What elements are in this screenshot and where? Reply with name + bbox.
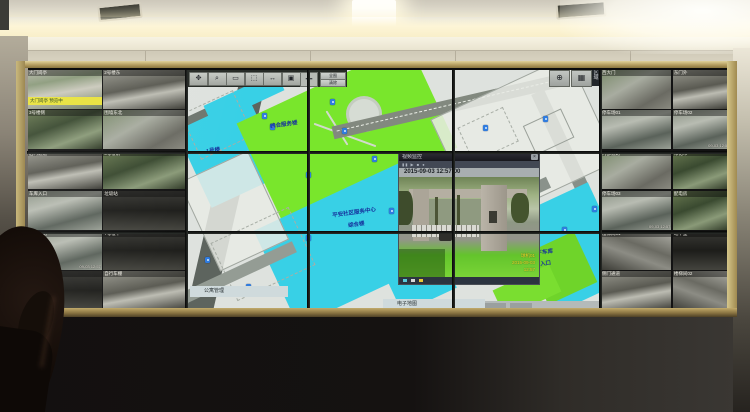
right-camera-tile-11[interactable]: 侧门通道	[601, 271, 671, 310]
right-camera-tile-5[interactable]: 内部道路	[601, 151, 671, 190]
toolbar-button-layers-icon[interactable]: ⬚	[245, 72, 264, 86]
map-camera-icon[interactable]	[342, 128, 347, 134]
monitor-bezel-vertical	[452, 70, 455, 310]
camera-label: 停车场03	[601, 191, 671, 197]
wall-frame-right	[727, 61, 737, 313]
map-camera-icon[interactable]	[205, 257, 210, 263]
osd-date: 2015-09-03	[512, 261, 535, 266]
camera-timestamp: 09-03 12:57	[79, 264, 100, 269]
toolbar-button-zoom-in-icon[interactable]: ⌕	[208, 72, 227, 86]
camera-label: 围墙东北	[103, 110, 186, 116]
right-camera-tile-12[interactable]: 楼梯间02	[673, 271, 731, 310]
wall-frame-top	[16, 61, 736, 68]
popup-playback-controls[interactable]: ▮▮ ▶ ■ ●	[399, 161, 539, 168]
left-camera-tile-2[interactable]: 2号楼东	[103, 70, 186, 109]
camera-label: 大门岗亭	[28, 70, 102, 76]
popup-timestamp: 2015-09-03 12:57:00	[399, 168, 539, 177]
close-icon[interactable]: ×	[531, 154, 538, 160]
right-camera-tile-2[interactable]: 东门外	[673, 70, 731, 109]
photo-corner-shadow	[0, 0, 9, 30]
right-camera-tile-8[interactable]: 配电房	[673, 191, 731, 230]
right-camera-tile-4[interactable]: 停车场0209-03 12:57	[673, 110, 731, 149]
camera-label: 垃圾站	[103, 191, 186, 197]
right-camera-tile-6[interactable]: 绿化带	[673, 151, 731, 190]
map-tab[interactable]: 公寓管理	[190, 286, 288, 297]
map-camera-icon[interactable]	[483, 125, 488, 131]
camera-label: 配电房	[673, 191, 731, 197]
camera-highlight-bar: 大门岗亭 预览中	[28, 97, 102, 105]
map-camera-icon[interactable]	[330, 99, 335, 105]
left-camera-tile-5[interactable]: 后门通道	[28, 151, 102, 190]
camera-label: 侧门通道	[601, 271, 671, 277]
map-toolbar: ✛ ✥⌕▭⬚↔▣全图清除	[186, 70, 347, 87]
map-camera-icon[interactable]	[389, 208, 394, 214]
right-camera-tile-3[interactable]: 停车场01	[601, 110, 671, 149]
right-camera-grid: 西大门东门外停车场01停车场0209-03 12:57内部道路绿化带停车场030…	[601, 70, 729, 310]
monitor-bezel-vertical	[599, 70, 602, 310]
tree	[399, 191, 413, 225]
wall-frame-bottom	[16, 308, 737, 317]
toolbar-button-measure-icon[interactable]: ↔	[263, 72, 282, 86]
map-camera-icon[interactable]	[592, 206, 597, 212]
map-camera-icon[interactable]	[372, 156, 377, 162]
osd-camera-name: 球机01	[521, 254, 535, 259]
tree	[435, 197, 438, 225]
camera-label: 2号楼东	[103, 70, 186, 76]
wall-below-screens	[0, 315, 750, 412]
monitor-bezel-vertical	[185, 70, 188, 310]
lawn-shadow	[399, 249, 445, 277]
tree	[511, 193, 529, 223]
camera-label: 车库入口	[28, 191, 102, 197]
left-camera-tile-4[interactable]: 围墙东北	[103, 110, 186, 149]
toolbar-mini-button[interactable]: 清除	[320, 79, 346, 87]
gate-window	[489, 211, 497, 223]
popup-status-bar	[399, 277, 539, 284]
tree	[457, 195, 460, 225]
camera-label: 停车场01	[601, 110, 671, 116]
camera-label: 自行车棚	[103, 271, 186, 277]
camera-timestamp: 09-03 12:57	[649, 224, 670, 229]
left-camera-tile-1[interactable]: 大门岗亭大门岗亭 预览中	[28, 70, 102, 109]
monitor-bezel-vertical	[307, 70, 310, 310]
toolbar-button-pan-icon[interactable]: ✥	[189, 72, 208, 86]
right-camera-tile-1[interactable]: 西大门	[601, 70, 671, 109]
control-room-photo: 大门岗亭大门岗亭 预览中2号楼东3号楼侧围墙东北后门通道5号楼前车库入口垃圾站小…	[0, 0, 750, 412]
right-camera-tile-7[interactable]: 停车场0309-03 12:57	[601, 191, 671, 230]
map-text-label: 入口	[539, 258, 551, 267]
left-camera-tile-8[interactable]: 垃圾站	[103, 191, 186, 230]
left-camera-tile-7[interactable]: 车库入口	[28, 191, 102, 230]
toolbar-button-full-extent-icon[interactable]: ▣	[282, 72, 301, 86]
camera-label: 东门外	[673, 70, 731, 76]
popup-title-bar[interactable]: 视频监控	[399, 153, 539, 161]
monitor-bezel-horizontal	[27, 151, 729, 154]
map-camera-icon[interactable]	[543, 116, 548, 122]
left-camera-tile-12[interactable]: 自行车棚	[103, 271, 186, 310]
camera-label: 楼梯间02	[673, 271, 731, 277]
map-camera-icon[interactable]	[262, 113, 267, 119]
popup-video-feed: 球机01 2015-09-03 12:57	[399, 177, 539, 277]
camera-label: 3号楼侧	[28, 110, 102, 116]
right-camera-tile-10[interactable]: 地下室	[673, 231, 731, 270]
toolbar-button-select-icon[interactable]: ▭	[226, 72, 245, 86]
map-toolbar-right-button-grid[interactable]: ▦	[571, 70, 592, 87]
camera-label: 西大门	[601, 70, 671, 76]
camera-label: 停车场02	[673, 110, 731, 116]
left-camera-tile-6[interactable]: 5号楼前	[103, 151, 186, 190]
osd-time: 12:57	[524, 268, 535, 273]
right-camera-tile-9[interactable]: 楼梯间01	[601, 231, 671, 270]
monitor-bezel-horizontal	[27, 231, 729, 234]
map-toolbar-right-button-settings[interactable]: ⊕	[549, 70, 570, 87]
left-camera-tile-3[interactable]: 3号楼侧	[28, 110, 102, 149]
left-camera-tile-10[interactable]: 7号楼下	[103, 231, 186, 270]
bright-light-corner	[560, 0, 750, 54]
video-popup-window[interactable]: 视频监控 × ▮▮ ▶ ■ ● 2015-09-03 12:57:00 球机01…	[398, 152, 540, 285]
